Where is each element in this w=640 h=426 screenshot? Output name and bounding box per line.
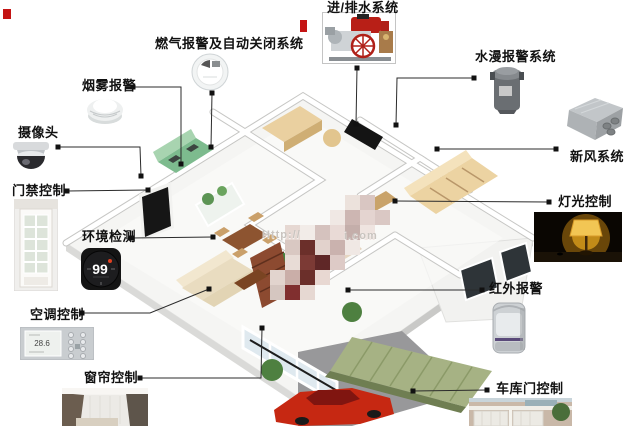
lamp-photo — [534, 212, 622, 262]
sofa — [182, 258, 252, 300]
car-wheel — [367, 410, 381, 418]
car-wheel — [295, 417, 309, 425]
closet-top — [404, 150, 472, 196]
camera-image — [10, 140, 52, 176]
house-floor-slab — [66, 96, 533, 400]
label-water-supply-drainage: 进/排水系统 — [327, 1, 399, 14]
label-garage-door: 车库门控制 — [496, 382, 564, 395]
connector-door — [67, 190, 148, 191]
label-environment-monitor: 环境检测 — [82, 230, 136, 243]
connector-curtain — [140, 328, 262, 378]
label-door-access: 门禁控制 — [12, 184, 66, 197]
connector-garage — [413, 390, 487, 391]
label-gas-alarm-shutoff: 燃气报警及自动关闭系统 — [155, 37, 304, 50]
watermark-suffix: i.com — [344, 230, 378, 242]
driveway — [298, 331, 468, 426]
chair — [248, 212, 264, 222]
water-pump-image — [322, 12, 396, 64]
connector-smoke — [133, 87, 181, 164]
gas-alarm-image — [191, 53, 229, 91]
carport-roof — [330, 337, 492, 407]
wardrobe — [262, 106, 322, 142]
sofa-chaise — [202, 270, 264, 307]
closet-shelves — [430, 168, 484, 202]
fresh-air-unit-image — [561, 92, 627, 150]
walls-shadow — [66, 96, 533, 276]
label-ac-control: 空调控制 — [30, 308, 84, 321]
smart-home-diagram: Http:// i.com — [0, 0, 640, 426]
bed-headboard — [296, 224, 340, 251]
balcony-windows — [243, 327, 337, 403]
red-corner-mark — [300, 20, 307, 32]
kitchen-appliance — [168, 155, 181, 163]
tv-feature-wall — [250, 242, 292, 308]
kitchen-cabinet-top — [153, 129, 196, 162]
bush — [261, 359, 283, 381]
bush — [342, 302, 362, 322]
label-lighting-control: 灯光控制 — [558, 195, 612, 208]
curtain-photo — [62, 388, 148, 426]
smoke-detector-image — [86, 94, 124, 126]
connector-pump — [356, 68, 357, 124]
wardrobe-side — [284, 120, 322, 152]
connector-gas — [211, 93, 212, 147]
door-image — [14, 199, 58, 291]
connector-light — [395, 201, 549, 202]
label-infrared-alarm: 红外报警 — [489, 282, 543, 295]
label-smoke-alarm: 烟雾报警 — [82, 79, 136, 92]
kitchen-cabinet — [158, 138, 214, 173]
floor-tint — [96, 115, 503, 370]
coffee-table — [234, 269, 268, 290]
label-flood-alarm: 水漫报警系统 — [475, 50, 556, 63]
carport-rim — [325, 371, 466, 413]
window-mullions — [270, 343, 318, 392]
walls — [66, 96, 533, 276]
ac-panel-reading: 28.6 — [34, 339, 50, 348]
red-corner-mark — [3, 9, 11, 19]
infrared-sensor-image — [487, 300, 532, 358]
balcony-railing — [250, 340, 346, 396]
ac-panel-image: 28.6 — [20, 327, 94, 360]
thermostat-image: 99 — [79, 246, 123, 292]
chair — [232, 248, 248, 258]
plant — [274, 253, 292, 271]
chair — [214, 227, 230, 237]
corner-shelf — [323, 129, 341, 147]
car — [274, 388, 394, 426]
carport-ribs — [350, 342, 472, 401]
sofa-back — [176, 250, 234, 288]
thermostat-reading: 99 — [92, 261, 108, 277]
flood-alarm-image — [488, 64, 526, 114]
mosaic-censor — [270, 195, 390, 300]
car-roof — [306, 390, 360, 405]
entry-door-frame — [139, 182, 174, 240]
label-curtain-control: 窗帘控制 — [84, 371, 138, 384]
label-camera: 摄像头 — [18, 126, 59, 139]
label-fresh-air: 新风系统 — [570, 150, 624, 163]
wing-window — [500, 243, 532, 282]
connector-flood — [396, 78, 474, 125]
bench — [352, 191, 397, 218]
connector-environment — [131, 237, 213, 238]
connector-ac — [82, 289, 209, 313]
kitchen-appliance — [186, 144, 199, 152]
garage-photo — [469, 398, 572, 426]
wall-tv-panel — [344, 119, 383, 150]
closet — [410, 158, 498, 214]
plant — [217, 186, 227, 196]
watermark-prefix: Http:// — [262, 229, 301, 241]
plant — [202, 193, 214, 205]
entry-door — [142, 187, 171, 237]
connector-camera — [58, 147, 141, 176]
bed-blanket — [312, 237, 362, 271]
glass-door — [196, 183, 244, 226]
tv-wall-stripes — [252, 252, 290, 292]
